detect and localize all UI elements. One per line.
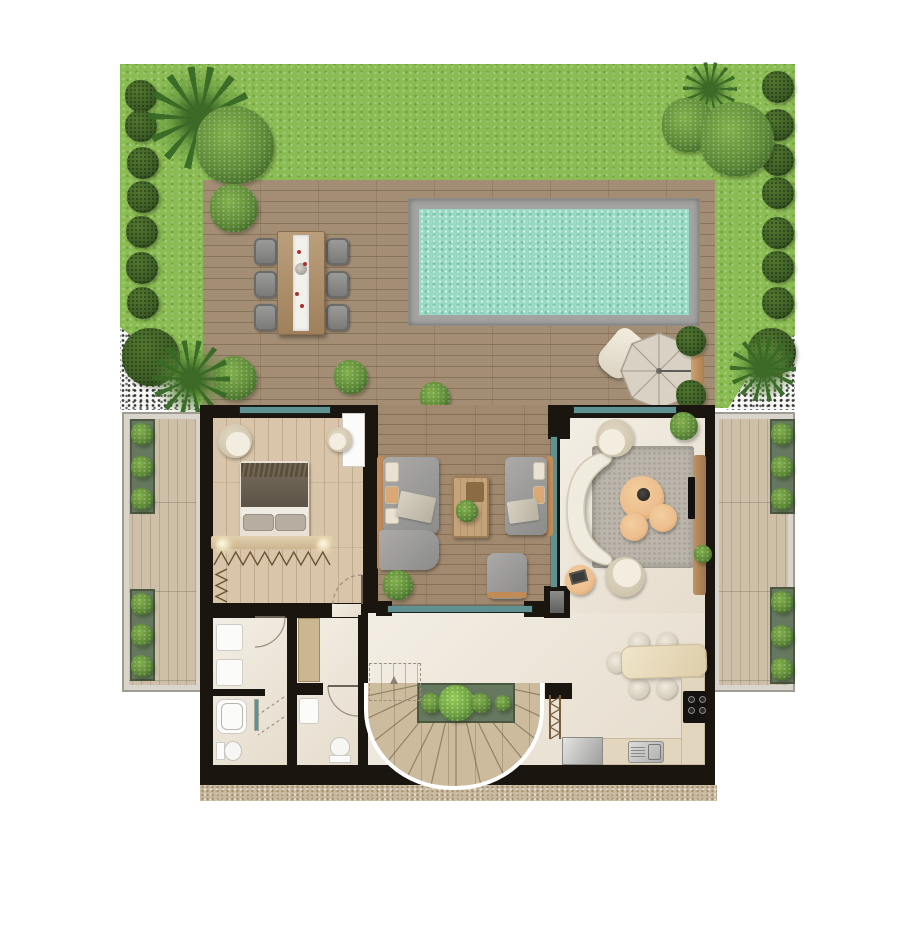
shrub: [127, 147, 159, 179]
potted-plant: [670, 412, 698, 440]
planter-plant: [471, 693, 491, 713]
dining-chair: [254, 238, 277, 265]
bedroom-side-chair: [327, 427, 352, 452]
fireplace: [550, 591, 564, 613]
dining-chair: [326, 238, 349, 265]
wall-bedroom-lounge: [363, 405, 378, 605]
planter-plant: [439, 685, 475, 721]
planter-plant: [131, 624, 153, 646]
shrub: [126, 216, 158, 248]
bedroom-armchair: [218, 424, 252, 458]
dining-chair: [254, 304, 277, 331]
planter-plant: [771, 625, 793, 647]
swimming-pool: [419, 209, 689, 315]
coffee-table-medium: [649, 504, 677, 532]
potted-plant: [694, 545, 712, 563]
planter-plant: [771, 488, 793, 510]
dining-chair: [326, 304, 349, 331]
planter-plant: [131, 593, 153, 615]
bedroom-door-opening: [332, 604, 361, 617]
planter-plant: [495, 695, 511, 711]
sofa-cushion: [385, 462, 399, 482]
bathtub-inner: [221, 703, 243, 730]
table-runner: [293, 235, 309, 331]
window-living-north: [574, 407, 676, 413]
kitchen-chair: [628, 678, 649, 699]
window-lounge-south: [388, 606, 532, 612]
shrub: [762, 71, 794, 103]
shrub: [762, 251, 794, 283]
shrub: [127, 181, 159, 213]
planter-plant: [771, 456, 793, 478]
burner: [699, 696, 706, 703]
kitchen-dining-table: [620, 644, 707, 680]
sofa-cushion: [533, 462, 545, 480]
planter-plant: [131, 488, 153, 510]
sink-drainer: [631, 745, 645, 759]
planter-plant: [131, 423, 153, 445]
kitchen-chair: [656, 678, 677, 699]
table-tray: [466, 482, 484, 502]
stair-direction-arrow: [390, 676, 398, 684]
hanger-rail: [214, 550, 330, 567]
flower-petal: [297, 250, 301, 254]
wc-toilet-bowl: [330, 737, 350, 756]
potted-plant: [383, 570, 413, 600]
window-bedroom-north: [240, 407, 330, 413]
curved-sofa: [562, 450, 626, 568]
lounge-chaise: [379, 530, 439, 570]
living-armchair-south: [605, 557, 645, 597]
planter-plant: [421, 693, 441, 713]
bathroom-sink: [216, 624, 243, 651]
planter-plant: [131, 655, 153, 677]
toilet-bowl: [224, 741, 242, 761]
tv: [688, 477, 695, 519]
coffee-table-small: [620, 513, 648, 541]
flower-petal: [300, 304, 304, 308]
dining-chair: [326, 271, 349, 298]
bed-pillow: [243, 514, 274, 531]
shrub: [127, 287, 159, 319]
dining-chair: [254, 271, 277, 298]
hanger-rail: [214, 569, 229, 602]
flower-petal: [303, 262, 307, 266]
bedroom-door: [333, 575, 363, 605]
bathroom-sink: [216, 659, 243, 686]
sofa-cushion: [385, 486, 399, 504]
burner: [699, 707, 706, 714]
sofa-throw: [507, 498, 540, 524]
bed-throw: [241, 463, 308, 477]
wc-sink: [299, 698, 319, 724]
planter-plant: [771, 423, 793, 445]
shrub: [676, 326, 706, 356]
shrub: [762, 287, 794, 319]
shrub: [762, 217, 794, 249]
tv-console: [693, 455, 706, 595]
floor-plan: [0, 0, 923, 925]
shrub: [762, 177, 794, 209]
tree: [700, 102, 774, 176]
planter-plant: [131, 456, 153, 478]
living-armchair-north: [596, 419, 634, 457]
planter-plant: [771, 658, 793, 680]
shower-folding-door: [254, 695, 288, 737]
sink-basin: [648, 744, 661, 760]
bathroom-door: [255, 617, 285, 647]
wall-living-nw-corner: [548, 405, 570, 439]
tree: [210, 184, 258, 232]
burner: [688, 696, 695, 703]
flower-petal: [295, 292, 299, 296]
sofa-back-rail: [546, 456, 553, 536]
wc-toilet-tank: [329, 755, 351, 763]
palm-tree: [730, 336, 796, 402]
tree: [334, 360, 368, 394]
potted-plant: [456, 500, 478, 522]
armchair-trim: [487, 592, 527, 598]
wall-stub-wc: [297, 683, 323, 695]
shrub: [126, 252, 158, 284]
ladder: [548, 695, 562, 739]
wall-bath-wc: [287, 615, 297, 765]
refrigerator: [562, 737, 603, 765]
hall-wardrobe: [298, 618, 320, 682]
tree: [196, 106, 274, 184]
planter-plant: [771, 591, 793, 613]
table-vase: [637, 488, 650, 501]
burner: [688, 707, 695, 714]
wc-door: [328, 686, 358, 716]
bed-duvet: [241, 477, 308, 507]
bed-pillow: [275, 514, 306, 531]
